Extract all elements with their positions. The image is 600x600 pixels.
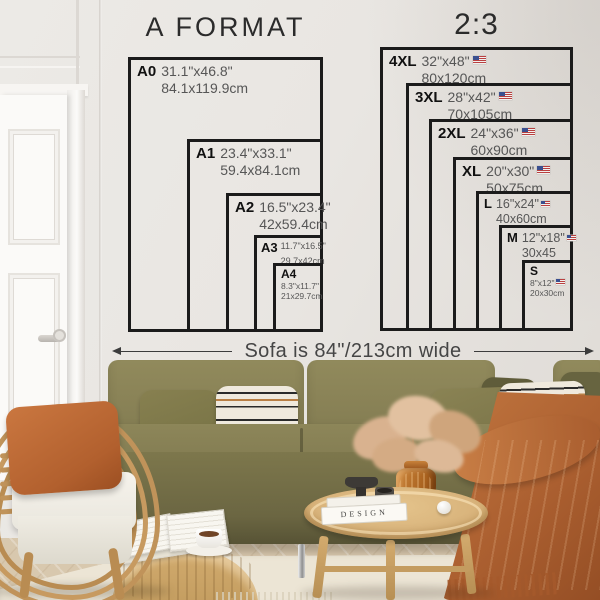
us-flag-icon — [556, 279, 565, 285]
size-code: A3 — [261, 241, 278, 256]
size-inches: 28"x42" — [448, 89, 496, 105]
size-code: A1 — [196, 146, 215, 163]
size-code: 2XL — [438, 126, 466, 143]
size-inches: 12"x18" — [522, 231, 565, 245]
size-cm: 59.4x84.1cm — [220, 163, 300, 179]
size-cm: 40x60cm — [496, 212, 550, 226]
sofa-width-annotation: Sofa is 84"/213cm wide — [112, 341, 594, 361]
us-flag-icon — [473, 56, 486, 64]
door-handle-rosette — [53, 329, 66, 342]
poster-size-guide-scene: A FORMAT 2:3 A0 31.1"x46.8" 84.1x119.9cm… — [0, 0, 600, 600]
size-code: M — [507, 231, 518, 246]
wall-molding-vertical — [76, 0, 79, 86]
size-inches: 23.4"x33.1" — [220, 146, 300, 163]
size-inches: 31.1"x46.8" — [161, 64, 248, 81]
size-code: S — [530, 265, 570, 279]
size-cm: 84.1x119.9cm — [161, 81, 248, 97]
size-inches: 11.7"x16.5" — [281, 241, 326, 256]
us-flag-icon — [499, 92, 512, 100]
us-flag-icon — [537, 166, 550, 174]
table-shadow — [300, 586, 495, 600]
size-cm: 20x30cm — [530, 289, 570, 299]
size-inches: 24"x36" — [471, 125, 519, 141]
size-code: A2 — [235, 200, 254, 217]
size-inches: 20"x30" — [486, 163, 534, 179]
size-cm: 30x45 — [522, 246, 576, 260]
wall-corner-trim — [99, 0, 102, 470]
size-code: A4 — [281, 268, 320, 282]
rust-pillow — [5, 400, 123, 496]
wall-molding — [0, 56, 80, 68]
ratio-2-3-title: 2:3 — [380, 8, 573, 42]
us-flag-icon — [567, 235, 576, 241]
a-format-title: A FORMAT — [118, 12, 333, 43]
us-flag-icon — [541, 201, 550, 207]
arrow-left-icon — [112, 347, 121, 355]
us-flag-icon — [522, 128, 535, 136]
size-code: A0 — [137, 64, 156, 81]
size-cm: 21x29.7cm — [281, 292, 320, 302]
book-stack: DESIGN — [320, 494, 405, 525]
size-code: L — [484, 197, 492, 212]
size-box-a4: A4 8.3"x11.7" 21x29.7cm — [273, 263, 323, 332]
size-code: 3XL — [415, 90, 443, 107]
size-cm: 42x59.4cm — [259, 217, 330, 233]
size-inches: 16.5"x23.4" — [259, 200, 330, 217]
size-inches: 16"x24" — [496, 197, 539, 211]
sofa-leg — [298, 544, 305, 578]
size-code: XL — [462, 164, 481, 181]
size-inches: 32"x48" — [422, 53, 470, 69]
table-brace — [320, 566, 470, 572]
arrow-right-icon — [585, 347, 594, 355]
size-box-s: S 8"x12" 20x30cm — [522, 260, 573, 331]
door-panel-top — [8, 129, 60, 245]
decor-ball — [437, 501, 451, 514]
size-code: 4XL — [389, 54, 417, 71]
size-inches: 8"x12" — [530, 278, 554, 288]
coffee-surface — [199, 531, 219, 537]
